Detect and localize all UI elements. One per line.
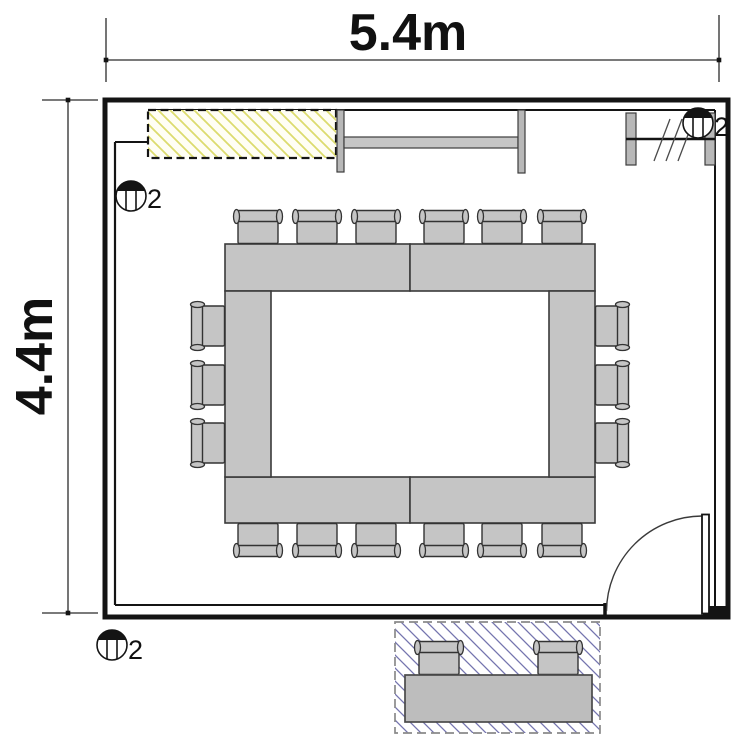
rail-post-left: [337, 110, 344, 172]
fixture-count-label: 2: [128, 635, 143, 665]
wall-rail: [337, 110, 525, 173]
outside-chair: [534, 641, 583, 675]
door-swing-arc: [607, 516, 703, 611]
height-dimension-label: 4.4m: [6, 297, 64, 416]
outside-chair: [415, 641, 464, 675]
outer-wall: [105, 100, 728, 617]
dimension-tick: [104, 58, 109, 63]
light-fixture-icon: [683, 108, 713, 138]
room-walls: [105, 100, 728, 619]
fixture-count-label: 2: [147, 184, 162, 214]
chair: [234, 524, 283, 558]
chair: [596, 302, 630, 351]
chair: [191, 302, 225, 351]
width-dimension-label: 5.4m: [349, 4, 468, 62]
wall-cabinet: [148, 110, 336, 158]
chair: [596, 361, 630, 410]
chair: [478, 210, 527, 244]
floor-plan-svg: 2 2 2 5.4m 4.4m: [0, 0, 750, 750]
light-fixture-icon: [116, 181, 146, 211]
light-fixture-icon: [97, 630, 127, 660]
floor-plan-canvas: 2 2 2 5.4m 4.4m: [0, 0, 750, 750]
chair: [191, 361, 225, 410]
dimension-tick: [66, 611, 71, 616]
table-segment: [225, 244, 410, 291]
dimension-tick: [66, 98, 71, 103]
door-leaf: [702, 515, 709, 614]
dimension-tick: [717, 58, 722, 63]
door: [607, 515, 710, 614]
chair: [420, 210, 469, 244]
chair: [293, 524, 342, 558]
chair: [538, 524, 587, 558]
chair: [352, 524, 401, 558]
conference-table: [225, 244, 595, 523]
chair: [352, 210, 401, 244]
rail-post-right: [518, 110, 525, 173]
table-segment: [410, 244, 595, 291]
rail-bar: [344, 137, 518, 148]
table-segment: [410, 477, 595, 523]
chair: [596, 419, 630, 468]
table-segment: [225, 291, 271, 477]
outside-area: [395, 622, 600, 733]
fixture-count-label: 2: [714, 112, 729, 142]
table-segment: [549, 291, 595, 477]
chair: [420, 524, 469, 558]
chair: [234, 210, 283, 244]
outside-table: [405, 675, 592, 722]
table-segment: [225, 477, 410, 523]
chair: [478, 524, 527, 558]
chair: [191, 419, 225, 468]
chair: [293, 210, 342, 244]
chair: [538, 210, 587, 244]
